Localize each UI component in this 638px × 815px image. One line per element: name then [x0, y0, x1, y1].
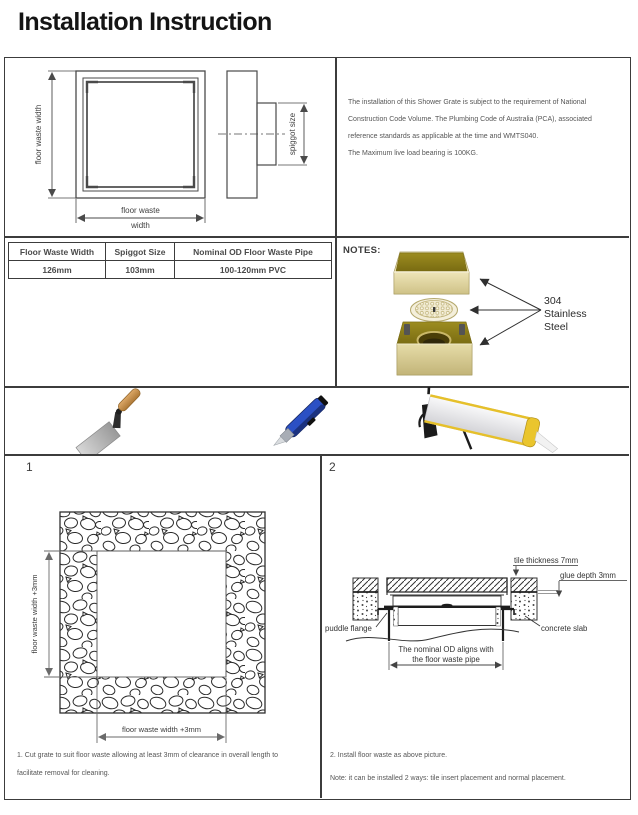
step1-note-line2: facilitate removal for cleaning.	[17, 765, 278, 783]
floor-waste-width-vertical-label: floor waste width	[34, 105, 43, 165]
intro-line: Construction Code Volume. The Plumbing C…	[348, 111, 630, 128]
floor-waste-technical-drawing: floor waste width floor waste width spig…	[4, 57, 335, 236]
cross-section	[346, 578, 558, 641]
spec-value-floor-waste-width: 126mm	[9, 261, 106, 279]
intro-line: reference standards as applicable at the…	[348, 128, 630, 145]
drain-body	[397, 322, 472, 375]
page-title: Installation Instruction	[18, 8, 272, 37]
drain-exploded-view: 304 Stainless Steel	[336, 237, 631, 386]
spec-value-nominal-od: 100-120mm PVC	[175, 261, 332, 279]
intro-text: The installation of this Shower Grate is…	[348, 94, 630, 162]
step2-note2: Note: it can be installed 2 ways: tile i…	[330, 770, 566, 788]
step1-dim-bottom-label: floor waste width +3mm	[122, 725, 201, 734]
spec-table-header-row: Floor Waste Width Spiggot Size Nominal O…	[9, 243, 332, 261]
nominal-od-label-line1: The nominal OD aligns with	[398, 645, 493, 654]
strainer-disc	[411, 299, 458, 322]
step2-note1: 2. Install floor waste as above picture.	[330, 747, 447, 765]
intro-line: The installation of this Shower Grate is…	[348, 94, 630, 111]
spiggot-size-label: spiggot size	[288, 112, 297, 155]
grate-top-tray	[394, 252, 469, 294]
nominal-od-label-line2: the floor waste pipe	[412, 655, 480, 664]
trowel-icon	[69, 387, 154, 454]
floor-waste-width-label-line2: width	[130, 221, 150, 230]
material-callout-arrows	[470, 279, 541, 345]
tile-thickness-label: tile thickness 7mm	[514, 556, 578, 565]
step1-dim-left-label: floor waste width +3mm	[30, 575, 39, 654]
tools-illustration	[5, 387, 631, 454]
material-callout-text: 304 Stainless Steel	[544, 295, 587, 333]
utility-knife-icon	[271, 394, 331, 453]
caulking-gun-icon	[406, 387, 566, 454]
intro-line: The Maximum live load bearing is 100KG.	[348, 145, 630, 162]
step1-note-line1: 1. Cut grate to suit floor waste allowin…	[17, 747, 278, 765]
spec-table: Floor Waste Width Spiggot Size Nominal O…	[8, 242, 332, 279]
floor-waste-cutout	[97, 551, 226, 677]
spec-header-spiggot-size: Spiggot Size	[106, 243, 175, 261]
material-line1: 304	[544, 295, 562, 307]
spec-header-nominal-od: Nominal OD Floor Waste Pipe	[175, 243, 332, 261]
material-line3: Steel	[544, 321, 568, 333]
floor-waste-width-label-line1: floor waste	[121, 206, 160, 215]
spec-table-value-row: 126mm 103mm 100-120mm PVC	[9, 261, 332, 279]
puddle-flange-label: puddle flange	[325, 624, 372, 633]
spec-value-spiggot-size: 103mm	[106, 261, 175, 279]
step1-note: 1. Cut grate to suit floor waste allowin…	[17, 747, 278, 783]
concrete-slab-label: concrete slab	[541, 624, 588, 633]
glue-depth-label: glue depth 3mm	[560, 571, 616, 580]
top-view-square	[76, 71, 205, 198]
spec-header-floor-waste-width: Floor Waste Width	[9, 243, 106, 261]
top-view-dimensions	[48, 71, 205, 223]
material-line2: Stainless	[544, 308, 587, 320]
